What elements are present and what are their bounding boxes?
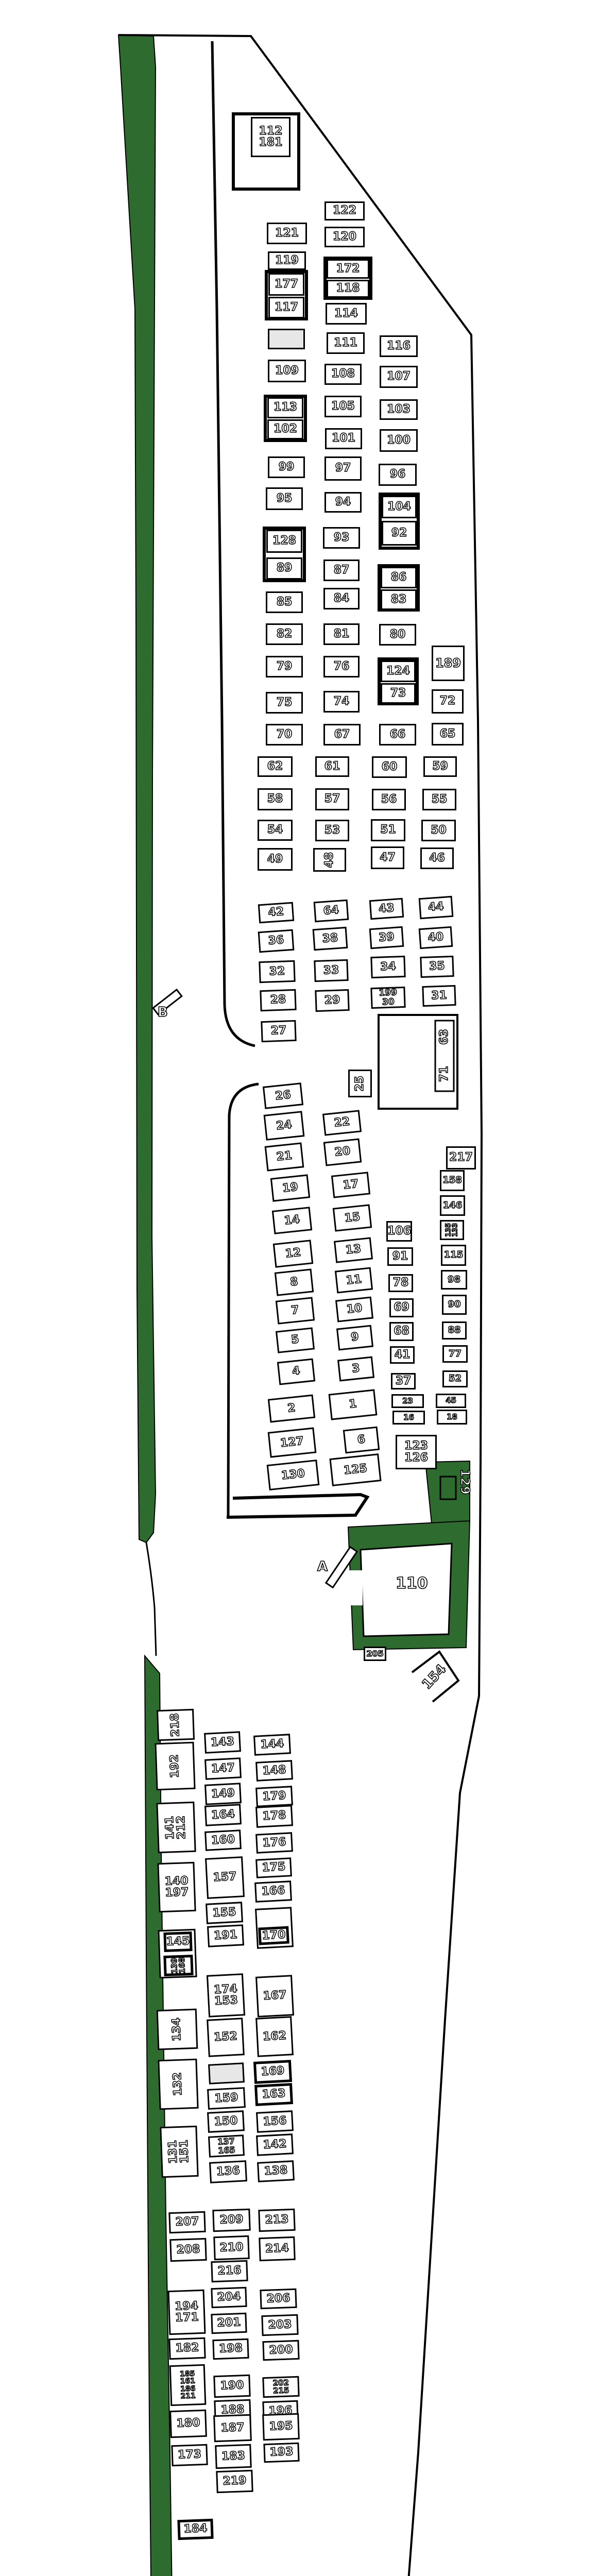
plot-65: 65	[432, 723, 464, 745]
plot-label: 81	[334, 629, 350, 640]
plot-label: 40	[428, 931, 444, 944]
plot-label: 159	[214, 2092, 238, 2105]
site-map: Stand: 28.02.2025 jf-franken.de N A B 11…	[0, 0, 598, 2576]
plot-label: 21	[276, 1150, 293, 1164]
plot-71-label: 71	[438, 1066, 451, 1082]
plot-78: 78	[388, 1274, 413, 1292]
plot-127: 127	[268, 1427, 317, 1458]
plot-155: 155	[206, 1902, 243, 1924]
plot-17: 17	[331, 1172, 370, 1198]
plot-63-label: 63	[438, 1029, 451, 1045]
plot-79: 79	[266, 656, 303, 677]
plot-label: 124	[386, 666, 410, 677]
plot-213: 213	[258, 2209, 295, 2232]
plot-162: 162	[255, 2016, 294, 2057]
plot-label: 93	[334, 532, 350, 544]
plot-label: 79	[277, 661, 293, 672]
plot-label: 74	[334, 696, 350, 707]
plot-73: 73	[381, 683, 416, 704]
plot-label: 169	[261, 2065, 285, 2078]
plot-56: 56	[372, 789, 406, 810]
plot-104: 104	[382, 496, 417, 518]
plot-label: 107	[387, 371, 411, 382]
plot-58: 58	[258, 788, 293, 810]
plot-label: 37	[396, 1376, 412, 1387]
plot-34: 34	[370, 956, 405, 978]
plot-label: 4	[292, 1366, 301, 1378]
plot-13: 13	[334, 1237, 373, 1263]
plot-label: 115	[444, 1250, 464, 1260]
plot-119: 119	[268, 251, 306, 270]
plot-label: 53	[324, 825, 340, 836]
plot-85: 85	[266, 591, 303, 613]
plot-26: 26	[263, 1082, 303, 1109]
plot-210: 210	[213, 2235, 250, 2260]
plot-label: 55	[432, 794, 448, 805]
plot-label: 112 181	[259, 126, 283, 149]
plot-label: 195	[269, 2420, 293, 2433]
plot-43: 43	[369, 898, 404, 920]
area-110-label: 110	[396, 1574, 428, 1592]
plot-149: 149	[204, 1783, 242, 1805]
plot-label: 131 151	[167, 2140, 191, 2164]
plot-label: 177	[275, 279, 298, 290]
plot-label: 84	[334, 593, 350, 604]
plot-111: 111	[327, 332, 365, 354]
plot-label: 60	[382, 761, 398, 773]
plot-label: 178	[262, 1810, 286, 1823]
plot-label: 134	[171, 2018, 183, 2042]
plot-label: 80	[390, 629, 406, 640]
plot-label: 96	[390, 469, 406, 480]
plot-129-label: 129	[458, 1469, 472, 1495]
plot-label: 92	[391, 528, 407, 539]
plot-178: 178	[255, 1805, 293, 1828]
plot-98: 98	[441, 1270, 467, 1290]
plot-187: 187	[213, 2414, 252, 2443]
plot-label: 163	[262, 2088, 286, 2101]
plot-4: 4	[277, 1358, 315, 1385]
plot-label: 113	[274, 402, 297, 413]
plot-label: 68	[394, 1326, 409, 1337]
plot-label: 128	[272, 535, 296, 547]
plot-214: 214	[259, 2236, 296, 2261]
plot-label: 94	[335, 497, 351, 508]
plot-label: 24	[276, 1119, 293, 1132]
plot-label: 6	[357, 1434, 366, 1446]
plot-label: 198	[219, 2343, 243, 2355]
plot-81: 81	[323, 623, 360, 645]
plot-144: 144	[253, 1734, 291, 1756]
plot-label: 218	[169, 1713, 182, 1737]
plot-114: 114	[326, 303, 367, 325]
road-edge	[227, 1495, 367, 1517]
plot-label: 16	[403, 1414, 414, 1421]
plot-47: 47	[371, 846, 404, 869]
plot-208: 208	[169, 2238, 207, 2262]
plot-label: 95	[277, 493, 293, 504]
plot-24: 24	[264, 1111, 305, 1141]
plot-label: 70	[277, 729, 293, 740]
plot-76: 76	[323, 656, 360, 677]
plot-label: 66	[390, 729, 406, 740]
plot-label: 216	[217, 2265, 242, 2277]
plot-label: 10	[346, 1303, 363, 1316]
plot-label: 145	[166, 1936, 190, 1948]
plot-205: 205	[364, 1647, 386, 1661]
plot-label: 13	[345, 1244, 362, 1257]
plot-label: 158	[442, 1176, 462, 1185]
plot-68: 68	[389, 1322, 414, 1341]
plot-18: 18	[437, 1410, 467, 1425]
plot-label: 89	[277, 563, 293, 574]
plot-label: 102	[274, 423, 297, 435]
plot-label: 83	[391, 594, 407, 605]
plot-label: 164	[211, 1809, 235, 1822]
plot-label: 103	[387, 404, 411, 415]
plot-209: 209	[212, 2209, 250, 2232]
plot-label: 139 168	[170, 1957, 187, 1974]
plot-128: 128	[266, 530, 302, 553]
plot-label: 48	[324, 852, 335, 868]
plot-label: 32	[269, 965, 285, 977]
plot-label: 35	[429, 961, 445, 973]
plot-label: 43	[378, 903, 395, 916]
plot-label: 67	[334, 729, 350, 740]
plot-label: 155	[212, 1907, 236, 1920]
plot-160: 160	[204, 1829, 242, 1851]
plot-label: 147	[211, 1762, 235, 1775]
plot-99: 99	[268, 456, 305, 478]
plot-label: 11	[346, 1274, 363, 1287]
plot-177: 177	[268, 273, 304, 296]
plot-16: 16	[392, 1411, 425, 1425]
plot-label: 149	[211, 1788, 235, 1801]
plot-label: 29	[324, 994, 340, 1006]
plot-label: 176	[262, 1837, 286, 1850]
plot-207: 207	[168, 2211, 206, 2233]
plot-label: 141 212	[164, 1815, 188, 1839]
plot-label: 57	[324, 793, 340, 805]
plot-195: 195	[262, 2413, 300, 2441]
plot-62: 62	[258, 756, 293, 777]
plot-48: 48	[313, 848, 346, 872]
plot-183: 183	[215, 2444, 252, 2469]
plot-50: 50	[421, 820, 456, 841]
plot-184: 184	[177, 2519, 213, 2540]
plot-unlabeled-gray	[268, 329, 305, 349]
plot-146: 146	[440, 1195, 465, 1216]
plot-49: 49	[258, 848, 293, 871]
plot-216: 216	[211, 2260, 248, 2282]
plot-46: 46	[420, 848, 454, 869]
plot-label: 146	[443, 1201, 463, 1210]
lane-line-lower	[228, 1084, 259, 1517]
plot-36: 36	[258, 929, 295, 953]
plot-label: 213	[265, 2214, 289, 2226]
plot-label: 75	[277, 697, 293, 708]
plot-label: 214	[265, 2243, 289, 2255]
plot-3: 3	[337, 1357, 374, 1382]
plot-label: 88	[448, 1326, 460, 1335]
plot-176: 176	[255, 1832, 293, 1854]
plot-21: 21	[265, 1142, 304, 1171]
plot-label: 138	[264, 2165, 288, 2178]
plot-29: 29	[315, 989, 349, 1012]
plot-label: 59	[432, 761, 448, 772]
plot-122: 122	[324, 201, 365, 221]
plot-115: 115	[441, 1245, 466, 1266]
plot-label: 184	[183, 2523, 208, 2535]
plot-88: 88	[442, 1321, 467, 1340]
plot-138: 138	[257, 2160, 295, 2182]
plot-label: 44	[428, 901, 444, 914]
hedge-strip-upper	[118, 35, 156, 1543]
plot-200: 200	[262, 2340, 299, 2361]
plot-137: 137 165	[208, 2134, 245, 2158]
plot-label: 19	[282, 1181, 299, 1195]
plot-label: 54	[267, 824, 283, 836]
plot-label: 78	[393, 1277, 409, 1289]
plot-label: 20	[334, 1146, 351, 1159]
plot-83: 83	[381, 589, 417, 610]
plot-label: 61	[324, 761, 340, 772]
plot-label: 130	[281, 1468, 305, 1482]
plot-40: 40	[419, 926, 453, 949]
plot-label: 72	[440, 696, 456, 707]
plot-label: 98	[448, 1275, 460, 1284]
plot-164: 164	[204, 1804, 242, 1826]
plot-label: 167	[263, 1990, 287, 2003]
plot-59: 59	[423, 756, 457, 777]
plot-label: 39	[378, 931, 395, 944]
plot-label: 118	[336, 283, 360, 294]
plot-182: 182	[168, 2337, 206, 2360]
plot-label: 104	[387, 501, 411, 513]
plot-130: 130	[267, 1460, 320, 1490]
plot-204: 204	[211, 2287, 247, 2308]
plot-label: 28	[270, 994, 286, 1006]
plot-label: 166	[261, 1885, 285, 1898]
plot-172: 172	[327, 259, 369, 279]
plot-label: 156	[263, 2115, 287, 2128]
plot-label: 135 133	[445, 1223, 459, 1237]
plot-45: 45	[436, 1394, 466, 1408]
plot-136: 136	[209, 2160, 247, 2183]
plot-label: 208	[176, 2244, 200, 2256]
plot-121: 121	[267, 223, 307, 244]
plot-label: 105	[331, 401, 355, 412]
plot-label: 52	[449, 1374, 462, 1383]
plot-7: 7	[276, 1297, 315, 1324]
plot-217: 217	[446, 1146, 476, 1170]
plot-150: 150	[207, 2110, 245, 2133]
plot-label: 185 161 186 211	[171, 2370, 204, 2400]
plot-66: 66	[379, 724, 416, 745]
plot-100: 100	[380, 429, 418, 452]
plot-label: 69	[394, 1302, 409, 1313]
plot-label: 217	[449, 1152, 473, 1163]
plot-label: 182	[175, 2342, 199, 2354]
plot-166: 166	[254, 1880, 292, 1903]
plot-label: 27	[270, 1025, 286, 1037]
plot-179: 179	[255, 1786, 293, 1807]
plot-97: 97	[324, 456, 362, 481]
plot-label: 31	[431, 990, 447, 1002]
plot-label: 148	[262, 1765, 286, 1777]
plot-label: 207	[175, 2216, 199, 2228]
plot-label: 125	[343, 1463, 368, 1477]
plot-label: 127	[280, 1435, 304, 1449]
plot-91: 91	[387, 1247, 413, 1266]
plot-90: 90	[442, 1295, 467, 1315]
plot-31: 31	[422, 985, 456, 1007]
plot-69: 69	[389, 1298, 414, 1317]
plot-label: 150	[214, 2115, 238, 2128]
plot-55: 55	[422, 789, 456, 810]
plot-label: 7	[291, 1304, 300, 1317]
plot-75: 75	[266, 692, 303, 714]
plot-label: 77	[449, 1349, 462, 1359]
plot-label: 157	[213, 1871, 237, 1884]
plot-label: 86	[391, 572, 407, 583]
plot-42: 42	[258, 902, 294, 924]
plot-unlabeled-gray	[208, 2062, 245, 2084]
plot-label: 38	[322, 933, 338, 945]
plot-label: 132	[172, 2072, 184, 2096]
plot-label: 191	[213, 1929, 237, 1942]
plot-2: 2	[268, 1395, 315, 1423]
plot-label: 189	[435, 657, 461, 669]
plot-label: 117	[275, 302, 298, 313]
plot-label: 2	[287, 1402, 296, 1415]
plot-125: 125	[329, 1453, 381, 1486]
plot-label: 200	[269, 2344, 293, 2357]
plot-163: 163	[254, 2083, 293, 2106]
plot-label: 140 197	[164, 1875, 189, 1899]
plot-label: 180	[176, 2417, 200, 2430]
plot-145: 145	[163, 1931, 192, 1952]
plot-6: 6	[343, 1427, 380, 1454]
plot-147: 147	[204, 1757, 242, 1780]
plot-112: 112 181	[251, 117, 291, 157]
plot-53: 53	[315, 820, 349, 841]
plot-107: 107	[380, 366, 418, 388]
plot-label: 46	[429, 853, 445, 864]
plot-label: 173	[178, 2449, 202, 2461]
plot-label: 73	[390, 688, 406, 699]
plot-label: 202 215	[264, 2379, 298, 2396]
plot-140: 140 197	[157, 1862, 196, 1912]
plot-label: 152	[213, 2031, 237, 2044]
plot-label: 23	[402, 1397, 413, 1405]
plot-118: 118	[327, 280, 369, 298]
plot-label: 12	[285, 1247, 302, 1261]
plot-label: 170	[262, 1929, 286, 1942]
plot-203: 203	[261, 2314, 298, 2336]
plot-label: 219	[223, 2475, 247, 2487]
plot-label: 64	[323, 905, 339, 918]
plot-134: 134	[157, 2009, 198, 2050]
plot-189: 189	[432, 646, 465, 681]
plot-label: 174 153	[213, 1983, 238, 2007]
plot-96: 96	[379, 464, 417, 486]
plot-38: 38	[313, 927, 348, 951]
plot-label: 172	[336, 263, 360, 275]
plot-label: 203	[268, 2319, 292, 2331]
plot-131: 131 151	[160, 2126, 198, 2178]
plot-label: 90	[448, 1300, 460, 1309]
plot-167: 167	[255, 1975, 294, 2018]
plot-80: 80	[379, 624, 416, 646]
plot-label: 206	[266, 2293, 291, 2305]
plot-label: 45	[446, 1397, 456, 1404]
plot-label: 116	[387, 341, 411, 352]
plot-32: 32	[259, 960, 295, 983]
plot-20: 20	[323, 1138, 362, 1166]
plot-113: 113	[267, 397, 303, 418]
plot-70: 70	[266, 724, 303, 745]
gate-a-label: A	[317, 1559, 328, 1574]
plot-102: 102	[267, 419, 303, 439]
plot-103: 103	[380, 399, 418, 420]
plot-label: 62	[267, 761, 283, 772]
plot-label: 82	[277, 629, 293, 640]
plot-89: 89	[266, 557, 302, 580]
plot-label: 65	[440, 728, 456, 740]
plot-label: 121	[275, 228, 299, 239]
plot-label: 87	[334, 565, 350, 576]
plot-132: 132	[158, 2059, 198, 2110]
plot-label: 160	[211, 1834, 235, 1847]
plot-142: 142	[256, 2133, 294, 2156]
plot-label: 22	[334, 1116, 351, 1130]
plot-135: 135 133	[440, 1220, 464, 1240]
plot-label: 56	[381, 794, 397, 805]
plot-193: 193	[263, 2443, 299, 2463]
plot-label: 114	[334, 308, 358, 319]
plot-label: 100	[387, 435, 411, 446]
plot-label: 111	[334, 337, 357, 349]
plot-14: 14	[272, 1207, 312, 1234]
plot-106: 106	[386, 1221, 412, 1242]
plot-175: 175	[255, 1857, 292, 1878]
plot-77: 77	[442, 1345, 468, 1363]
plot-170: 170	[258, 1926, 289, 1945]
plot-173: 173	[171, 2444, 208, 2466]
plot-41: 41	[390, 1346, 415, 1364]
plot-label: 143	[210, 1736, 234, 1749]
plot-82: 82	[266, 623, 303, 645]
plot-199: 199 30	[370, 987, 405, 1009]
plot-108: 108	[324, 364, 362, 385]
plot-label: 15	[344, 1211, 361, 1225]
plot-label: 51	[380, 824, 396, 836]
plot-51: 51	[371, 819, 405, 841]
plot-label: 58	[267, 793, 283, 805]
plot-label: 101	[332, 433, 355, 444]
plot-67: 67	[323, 724, 361, 745]
plot-169: 169	[253, 2060, 292, 2084]
plot-86: 86	[381, 567, 417, 588]
plot-label: 3	[351, 1363, 361, 1375]
plot-label: 120	[333, 231, 356, 243]
plot-93: 93	[323, 527, 360, 549]
plot-33: 33	[314, 959, 348, 982]
plot-192: 192	[155, 1742, 195, 1791]
plot-15: 15	[333, 1204, 372, 1231]
plot-11: 11	[335, 1267, 373, 1293]
